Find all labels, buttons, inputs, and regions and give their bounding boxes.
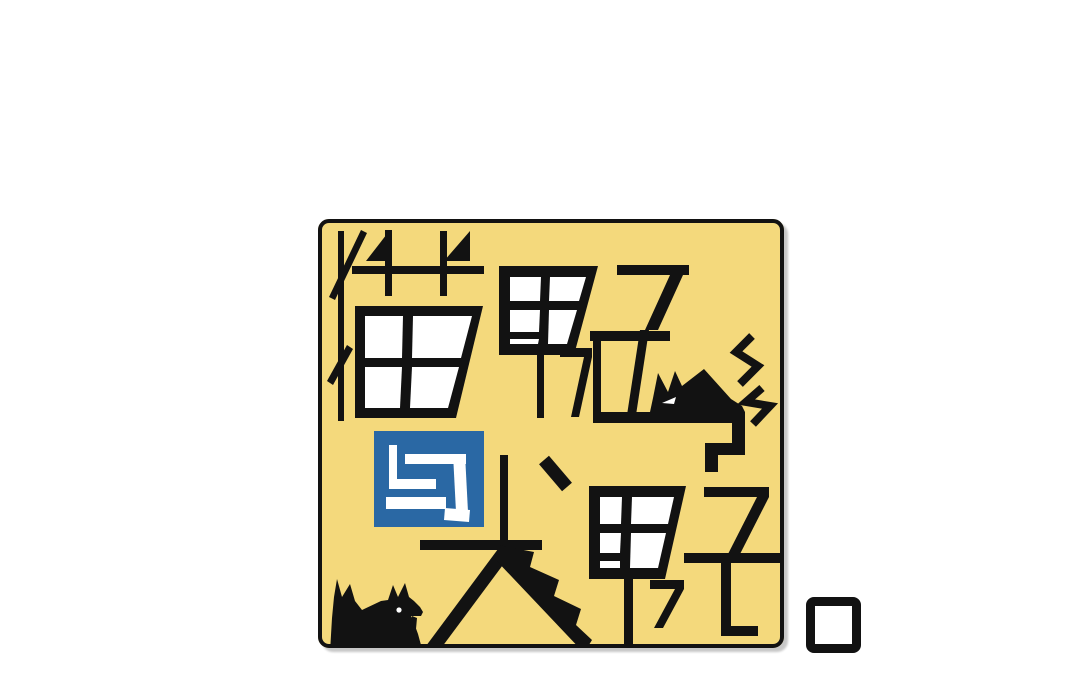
dog-eye bbox=[396, 607, 401, 612]
logo-box bbox=[318, 219, 784, 648]
connector-yu-badge bbox=[374, 431, 484, 527]
logo-artwork bbox=[318, 219, 784, 648]
square-period-icon bbox=[806, 597, 861, 653]
